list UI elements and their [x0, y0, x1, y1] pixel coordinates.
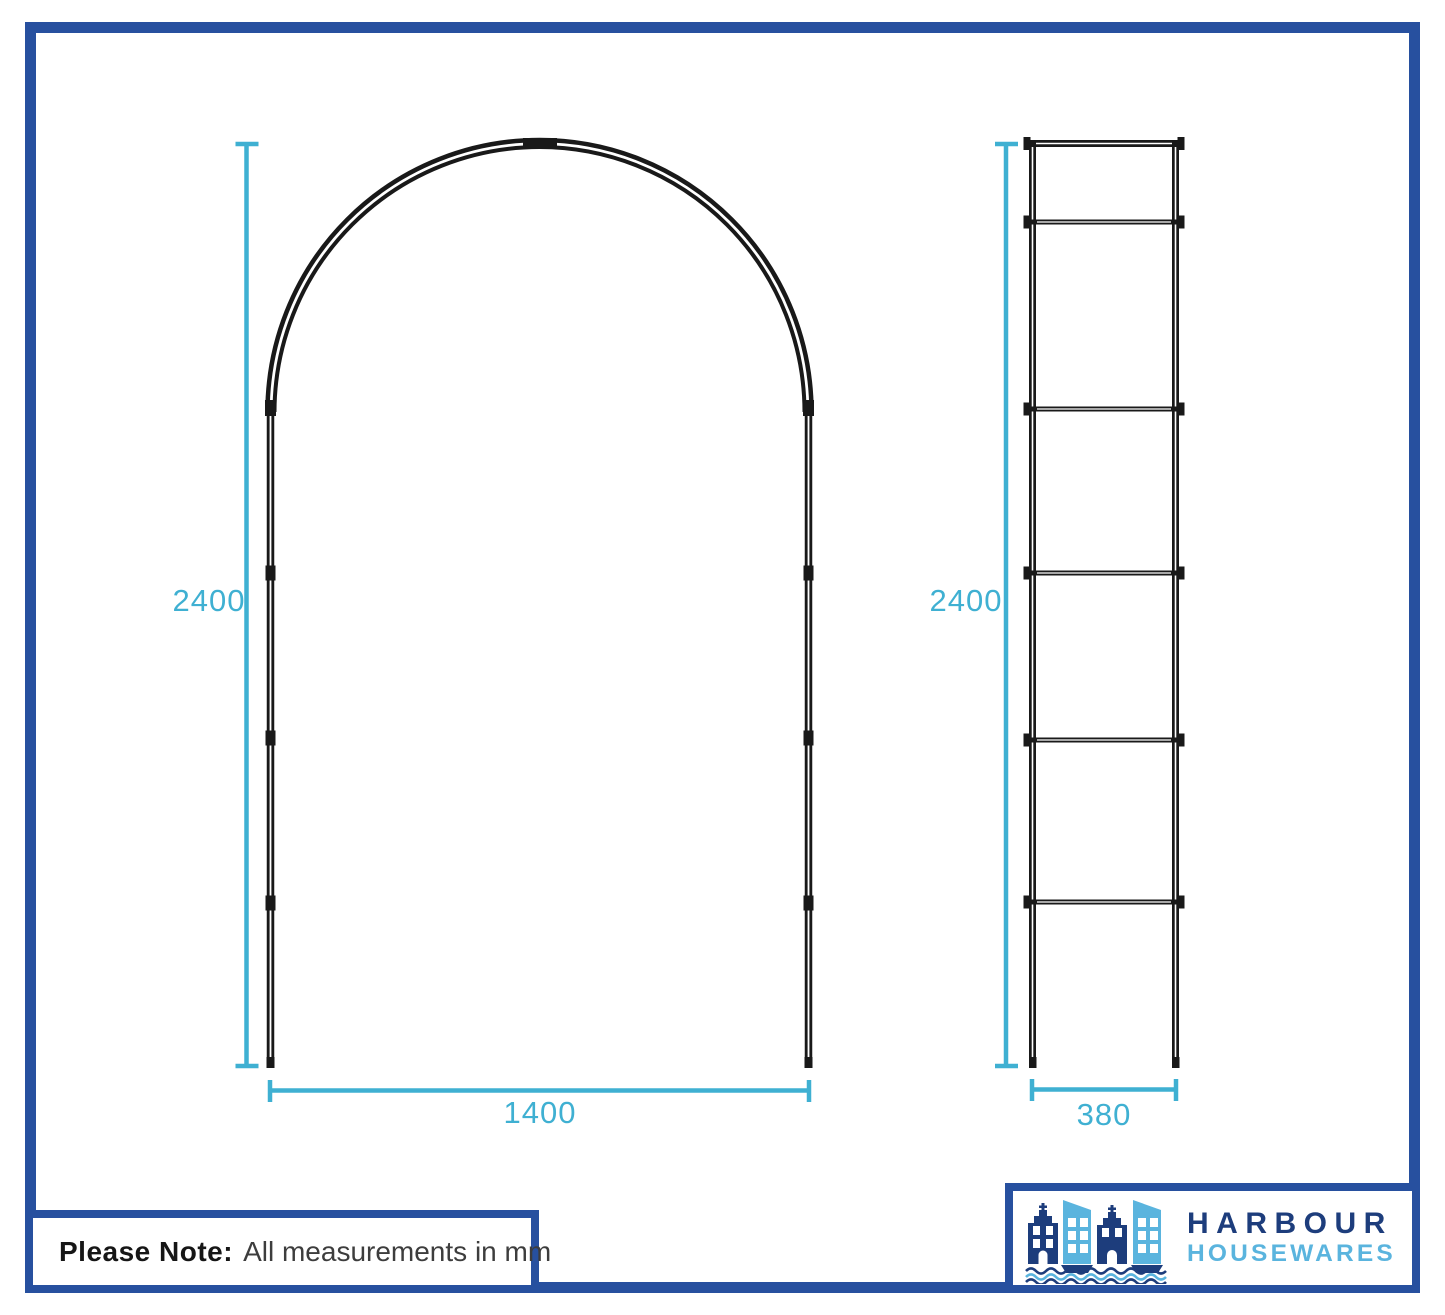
harbour-buildings-icon [1025, 1192, 1177, 1284]
technical-drawing [0, 0, 1445, 1315]
front-height-label: 2400 [173, 583, 246, 619]
side-view-drawing [1024, 137, 1185, 1068]
side-height-label: 2400 [930, 583, 1003, 619]
side-width-label: 380 [1077, 1097, 1132, 1133]
arch-inner-curve [275, 147, 805, 412]
front-width-label: 1400 [504, 1095, 577, 1131]
note-label: Please Note: [59, 1236, 233, 1268]
measurement-note-box: Please Note: All measurements in mm [25, 1210, 539, 1293]
product-dimension-diagram: 2400 1400 2400 380 Please Note: All meas… [0, 0, 1445, 1315]
brand-name-bottom: HOUSEWARES [1187, 1242, 1396, 1267]
side-joint-nubs [1024, 137, 1185, 909]
harbour-housewares-logo: HARBOUR HOUSEWARES [1005, 1183, 1420, 1293]
brand-name-top: HARBOUR [1187, 1209, 1396, 1239]
note-text: All measurements in mm [243, 1236, 551, 1268]
water-waves [1026, 1269, 1166, 1285]
arch-outer-curve [268, 140, 812, 412]
front-view-drawing [265, 138, 814, 1068]
logo-text: HARBOUR HOUSEWARES [1187, 1209, 1396, 1267]
side-crossbars [1030, 222, 1178, 902]
arch-apex-joint [523, 138, 557, 148]
